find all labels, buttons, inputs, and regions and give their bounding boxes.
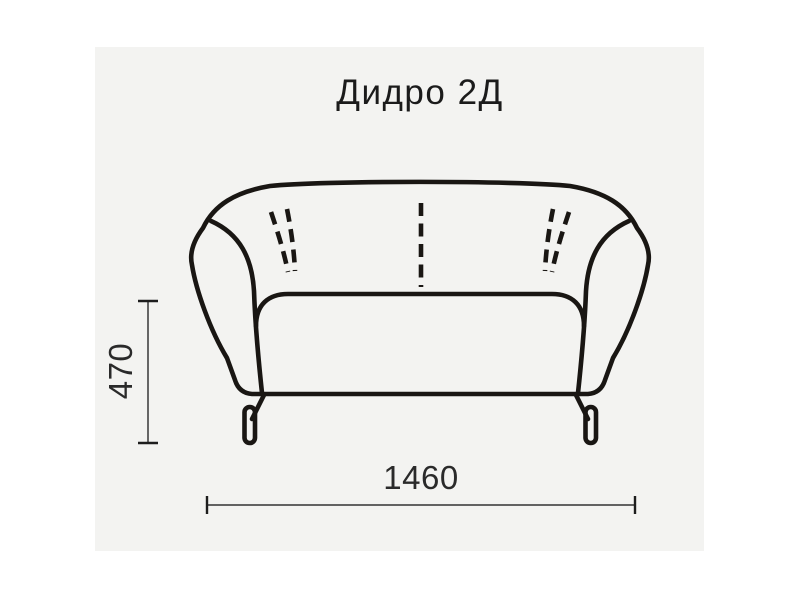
width-dimension-label: 1460 <box>321 461 521 495</box>
stitch-right-inner <box>545 209 553 271</box>
width-dimension-line <box>207 496 635 514</box>
right-leg <box>586 407 597 443</box>
height-dimension-line <box>138 301 158 443</box>
product-dimension-card: Дидро 2Д <box>0 0 800 600</box>
stitch-left-inner <box>287 209 295 271</box>
height-dimension-label: 470 <box>104 311 138 431</box>
stitch-lines <box>271 203 569 287</box>
sofa-technical-drawing <box>0 0 800 600</box>
left-arm-curve <box>211 221 262 393</box>
stitch-left-outer <box>271 212 288 272</box>
sofa-line-drawing <box>191 182 649 443</box>
stitch-right-outer <box>552 212 569 272</box>
right-arm-curve <box>578 221 629 393</box>
left-leg <box>245 407 256 443</box>
seat-cushion <box>256 294 584 326</box>
